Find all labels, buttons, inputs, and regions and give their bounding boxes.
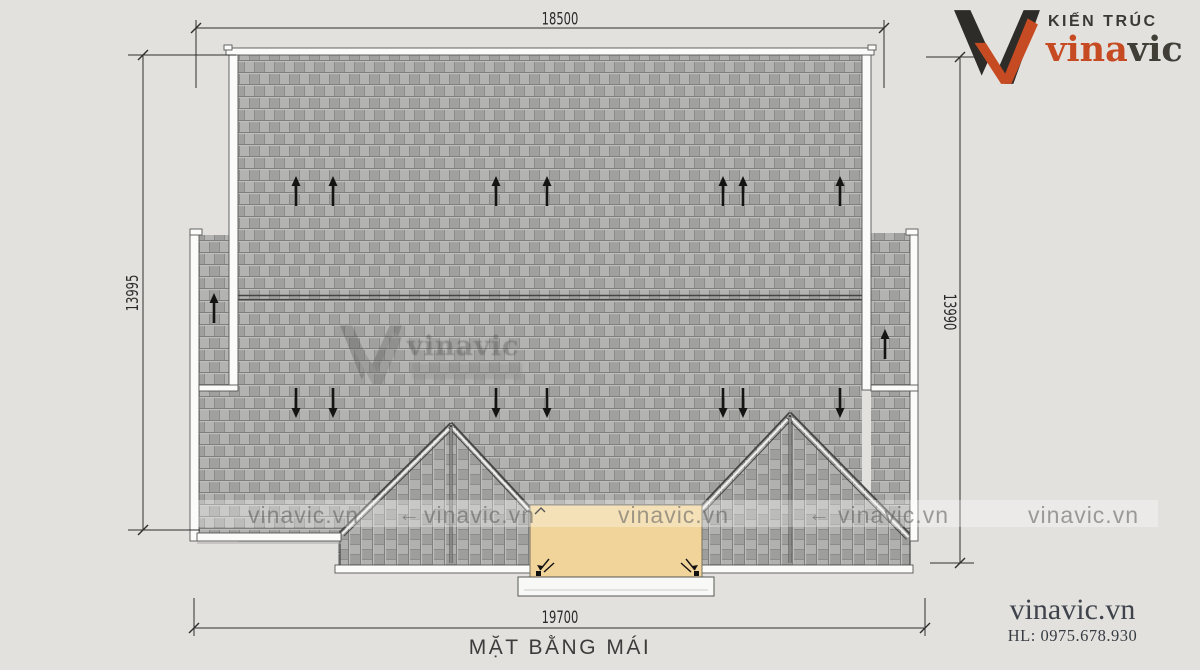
watermark-text: vinavic.vn (838, 502, 949, 529)
drawing-title: MẶT BẰNG MÁI (395, 636, 725, 660)
watermark-arrow-icon: ← (808, 501, 830, 527)
brand-name: vinavic (1046, 30, 1183, 70)
watermark-text: vinavic.vn (248, 502, 359, 529)
roof-plan-page: 18500 13995 13990 19700 vinavic.vn ← vin… (0, 0, 1200, 670)
roof-plan-drawing (0, 0, 1200, 670)
watermark-arrow-icon: ← (398, 501, 420, 527)
background-mask (188, 542, 338, 602)
brand-name-primary: vina (1046, 29, 1128, 70)
watermark-text: vinavic.vn (424, 502, 535, 529)
dimension-top: 18500 (531, 11, 589, 28)
contact-block: vinavic.vn HL: 0975.678.930 (955, 594, 1190, 646)
dimension-right: 13990 (941, 290, 958, 333)
watermark-text: vinavic.vn (1028, 502, 1139, 529)
porch-slab (518, 577, 714, 596)
brand-logo-mark-icon (952, 8, 1042, 86)
watermark-logo-mark-icon (337, 322, 405, 388)
watermark-text: vinavic.vn (618, 502, 729, 529)
watermark-brand-text: vinavic (407, 331, 519, 362)
watermark-slogan-bar (412, 363, 522, 379)
dimension-left: 13995 (125, 271, 142, 314)
brand-name-secondary: vic (1128, 29, 1183, 70)
dimension-bottom: 19700 (531, 610, 589, 627)
contact-website: vinavic.vn (955, 594, 1190, 626)
contact-hotline: HL: 0975.678.930 (955, 626, 1190, 646)
